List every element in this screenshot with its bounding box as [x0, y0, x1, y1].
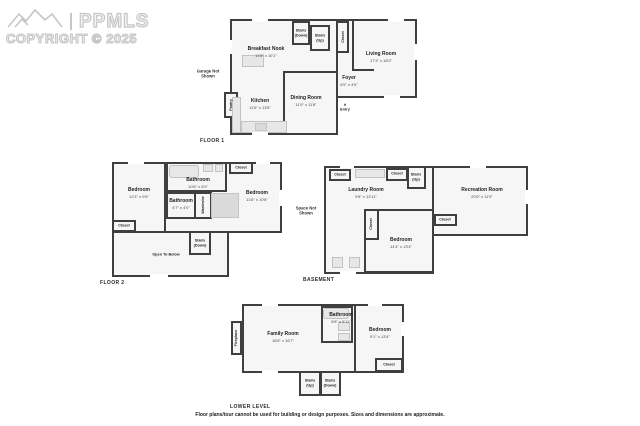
window [252, 19, 268, 22]
room-label-stairs-up: Stairs (Up) [407, 172, 425, 181]
toilet [215, 164, 223, 172]
room-label-breakfast-nook: Breakfast Nook11'8" x 10'1" [248, 46, 285, 58]
window [340, 271, 356, 274]
room-label-closet: Closet [436, 218, 454, 223]
window [384, 95, 400, 98]
window [256, 161, 270, 164]
room-label-bedroom: Bedroom9'1" x 13'4" [369, 327, 391, 339]
dryer [349, 257, 360, 268]
room-label-stairs-down: Stairs (Down) [321, 378, 339, 387]
window [262, 370, 278, 373]
window [279, 190, 282, 206]
ppmls-mountain-logo-icon [6, 6, 64, 30]
shower-area [211, 193, 239, 218]
window [401, 322, 404, 336]
garage-not-shown-note: Garage Not Shown [193, 69, 223, 80]
wall [352, 19, 354, 71]
window [128, 161, 144, 164]
room-label-bedroom-left: Bedroom12'4" x 9'8" [128, 187, 150, 199]
watermark-copyright: COPYRIGHT © 2025 [6, 31, 149, 46]
room-label-pantry: Pantry [229, 99, 233, 111]
window [340, 165, 354, 168]
room-label-foyer: Foyer6'5" x 4'6" [340, 75, 358, 87]
basement-title: BASEMENT [303, 277, 334, 283]
kitchen-sink [255, 123, 267, 131]
window [368, 303, 382, 306]
entry-arrow-icon: ▲ [343, 102, 347, 107]
washer [332, 257, 343, 268]
window [470, 165, 486, 168]
room-label-kitchen: Kitchen11'6" x 13'5" [249, 98, 271, 110]
lower-level-title: LOWER LEVEL [230, 404, 271, 410]
room-label-bathroom-small: Bathroom4'7" x 4'0" [169, 198, 193, 210]
room-label-family-room: Family Room18'6" x 16'7" [267, 331, 298, 343]
wall [352, 69, 374, 71]
watermark: PPMLS COPYRIGHT © 2025 [6, 6, 149, 46]
room-label-open-to-below: Open To Below [146, 253, 186, 258]
room-label-closet: Closet [380, 363, 398, 368]
window [252, 132, 268, 135]
room-label-bathroom: Bathroom8'8" x 5'11" [329, 312, 353, 324]
window [388, 19, 404, 22]
toilet [338, 333, 350, 341]
room-label-laundry-room: Laundry Room9'8" x 13'11" [348, 187, 383, 199]
entry-label: Entry [336, 108, 354, 113]
disclaimer-text: Floor plans/tour cannot be used for buil… [0, 412, 640, 418]
room-label-dining-room: Dining Room11'9" x 11'8" [290, 95, 321, 107]
wall [354, 304, 356, 373]
window [414, 44, 417, 60]
watermark-brand: PPMLS [70, 13, 149, 30]
room-label-wardrobe: Wardrobe [201, 196, 205, 214]
window [229, 40, 232, 54]
floor-plan-sheet: PPMLS COPYRIGHT © 2025 Breakfast Nook11'… [0, 0, 640, 426]
room-label-bathroom-top: Bathroom10'6" x 5'0" [186, 177, 210, 189]
room-label-stairs-up: Stairs (Up) [301, 378, 319, 387]
room-label-closet: Closet [369, 218, 373, 230]
room-label-closet: Closet [331, 173, 349, 178]
room-label-stairs-down: Stairs (Down) [292, 28, 310, 37]
wall [283, 71, 338, 73]
room-label-stairs-down: Stairs (Down) [191, 238, 209, 247]
space-not-shown-note: Space Not Shown [291, 206, 321, 217]
room-label-closet: Closet [115, 224, 133, 229]
room-label-closet: Closet [341, 31, 345, 43]
window [150, 274, 168, 277]
laundry-counter [355, 169, 385, 178]
room-label-bedroom: Bedroom14'4" x 13'4" [390, 237, 412, 249]
kitchen-counter [232, 97, 241, 133]
room-label-living-room: Living Room17'3" x 18'2" [366, 51, 396, 63]
window [262, 303, 278, 306]
floor2-title: FLOOR 2 [100, 280, 124, 286]
bathroom-sink [203, 164, 213, 172]
floor1-title: FLOOR 1 [200, 138, 224, 144]
room-label-stairs-up: Stairs (Up) [311, 33, 329, 42]
room-label-closet: Closet [388, 172, 406, 177]
bathtub [169, 165, 199, 178]
window [525, 190, 528, 204]
room-label-closet: Closet [232, 166, 250, 171]
room-label-bedroom-right: Bedroom11'8" x 10'8" [246, 190, 268, 202]
room-label-recreation-room: Recreation Room20'6" x 11'9" [461, 187, 502, 199]
room-label-fireplace: Fireplace [234, 330, 238, 347]
